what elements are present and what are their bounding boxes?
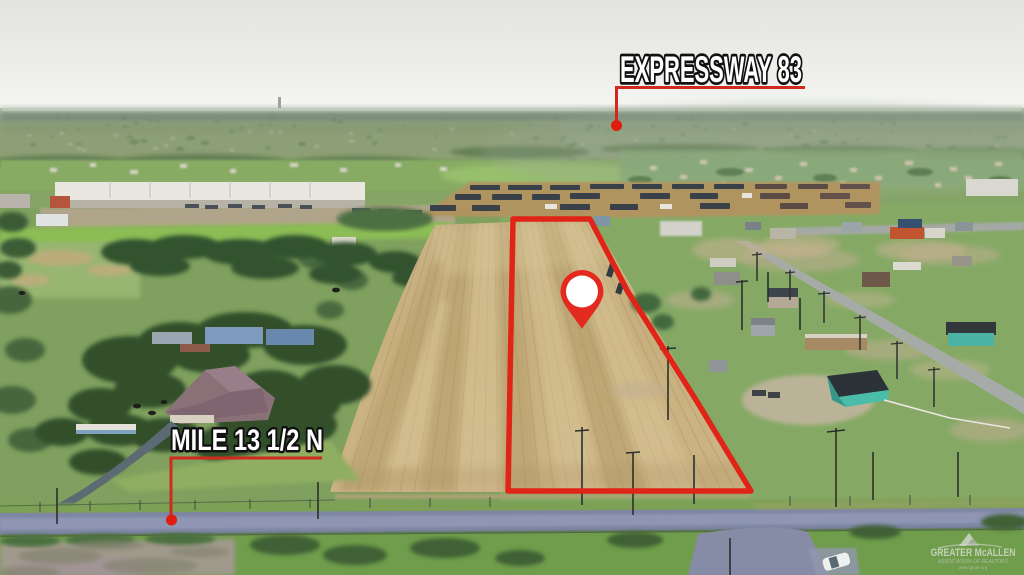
- svg-text:MILE 13 1/2 N: MILE 13 1/2 N: [171, 424, 323, 457]
- svg-text:GREATER McALLEN: GREATER McALLEN: [931, 547, 1016, 559]
- svg-text:www.gmar.org: www.gmar.org: [959, 565, 988, 570]
- svg-text:EXPRESSWAY 83: EXPRESSWAY 83: [620, 49, 802, 90]
